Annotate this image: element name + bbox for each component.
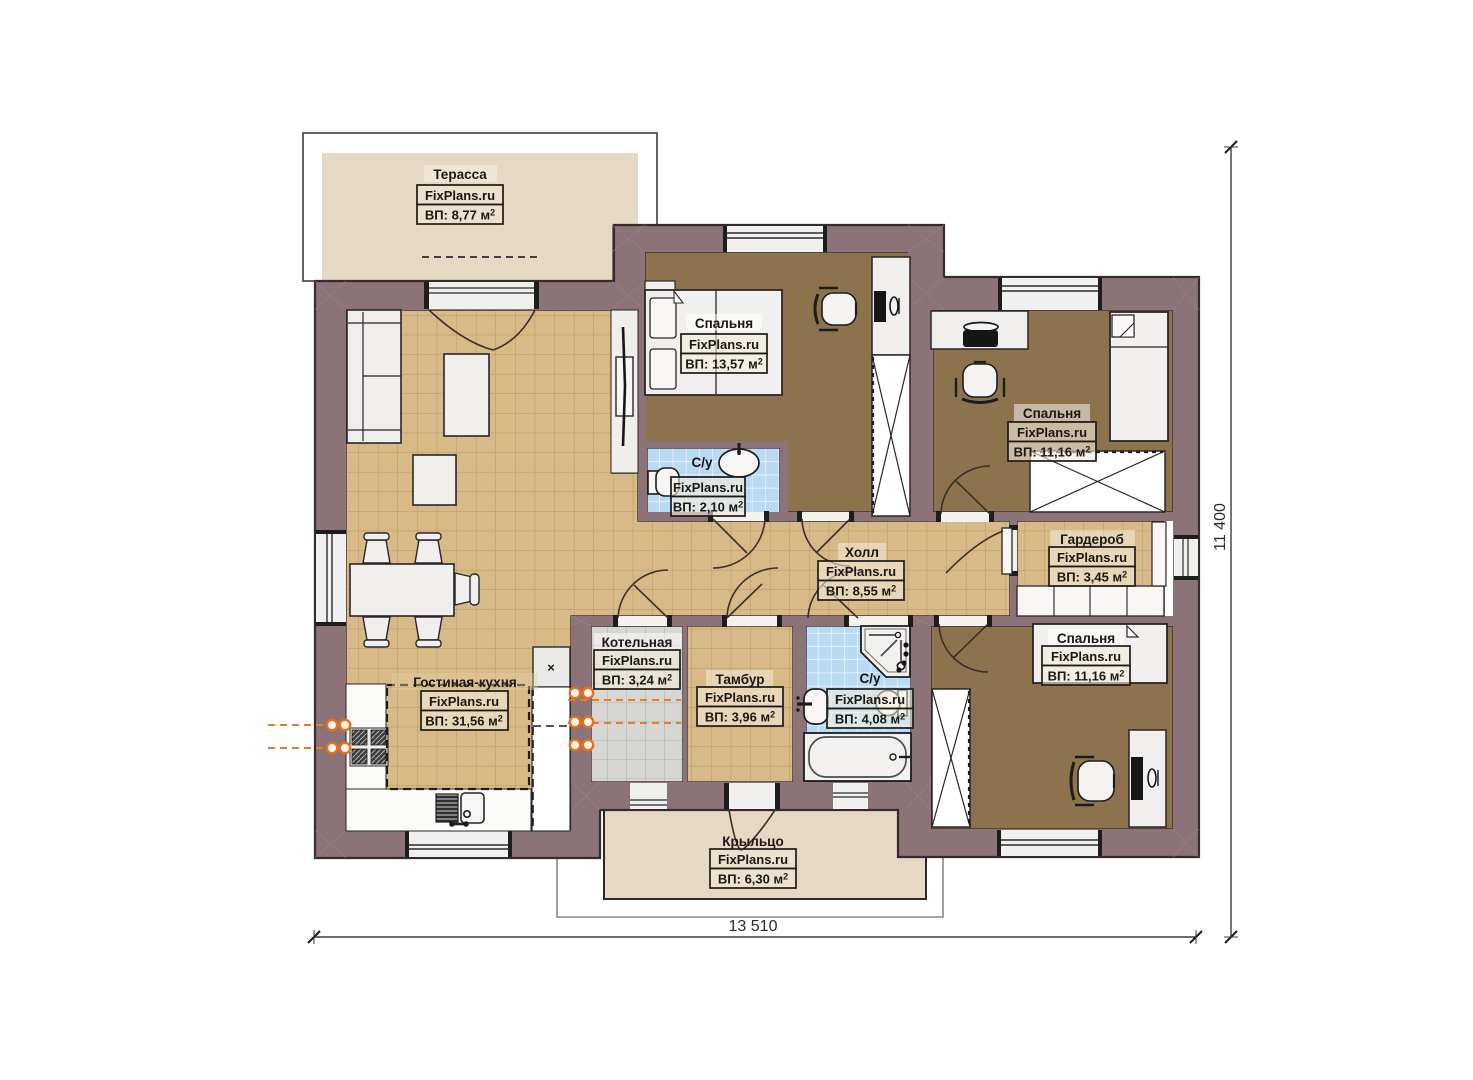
svg-text:13 510: 13 510 [729,918,778,935]
svg-text:Тамбур: Тамбур [716,672,765,687]
svg-text:Котельная: Котельная [602,635,673,650]
svg-text:ВП: 2,10 м2: ВП: 2,10 м2 [673,500,743,515]
svg-text:FixPlans.ru: FixPlans.ru [1017,425,1087,440]
svg-text:FixPlans.ru: FixPlans.ru [835,692,905,707]
svg-text:FixPlans.ru: FixPlans.ru [826,564,896,579]
svg-text:FixPlans.ru: FixPlans.ru [1057,550,1127,565]
svg-text:Гардероб: Гардероб [1060,532,1124,547]
svg-text:ВП: 4,08 м2: ВП: 4,08 м2 [835,712,905,727]
svg-text:Спальня: Спальня [1057,631,1115,646]
svg-text:ВП: 13,57 м2: ВП: 13,57 м2 [685,357,762,372]
svg-text:FixPlans.ru: FixPlans.ru [673,480,743,495]
svg-text:FixPlans.ru: FixPlans.ru [689,337,759,352]
svg-text:ВП: 11,16 м2: ВП: 11,16 м2 [1048,669,1125,684]
svg-text:11 400: 11 400 [1212,503,1229,551]
svg-text:Терасса: Терасса [433,167,487,182]
svg-text:С/у: С/у [859,671,881,686]
svg-text:FixPlans.ru: FixPlans.ru [429,694,499,709]
svg-text:FixPlans.ru: FixPlans.ru [718,852,788,867]
svg-text:ВП: 31,56 м2: ВП: 31,56 м2 [425,714,502,729]
svg-text:ВП: 6,30 м2: ВП: 6,30 м2 [718,872,788,887]
svg-text:Спальня: Спальня [1023,406,1081,421]
svg-text:Крыльцо: Крыльцо [722,834,783,849]
svg-text:FixPlans.ru: FixPlans.ru [425,188,495,203]
svg-text:Гостиная-кухня: Гостиная-кухня [413,675,516,690]
svg-text:ВП: 11,16 м2: ВП: 11,16 м2 [1014,445,1091,460]
svg-text:FixPlans.ru: FixPlans.ru [1051,649,1121,664]
svg-text:ВП: 3,96 м2: ВП: 3,96 м2 [705,710,775,725]
svg-text:Холл: Холл [845,545,879,560]
svg-text:С/у: С/у [691,455,713,470]
svg-text:Спальня: Спальня [695,316,753,331]
svg-text:ВП: 3,24 м2: ВП: 3,24 м2 [602,673,672,688]
svg-text:FixPlans.ru: FixPlans.ru [602,653,672,668]
svg-text:ВП: 8,77 м2: ВП: 8,77 м2 [425,208,495,223]
svg-text:FixPlans.ru: FixPlans.ru [705,690,775,705]
svg-text:ВП: 3,45 м2: ВП: 3,45 м2 [1057,570,1127,585]
svg-text:ВП: 8,55 м2: ВП: 8,55 м2 [826,584,896,599]
svg-text:×: × [547,660,555,675]
